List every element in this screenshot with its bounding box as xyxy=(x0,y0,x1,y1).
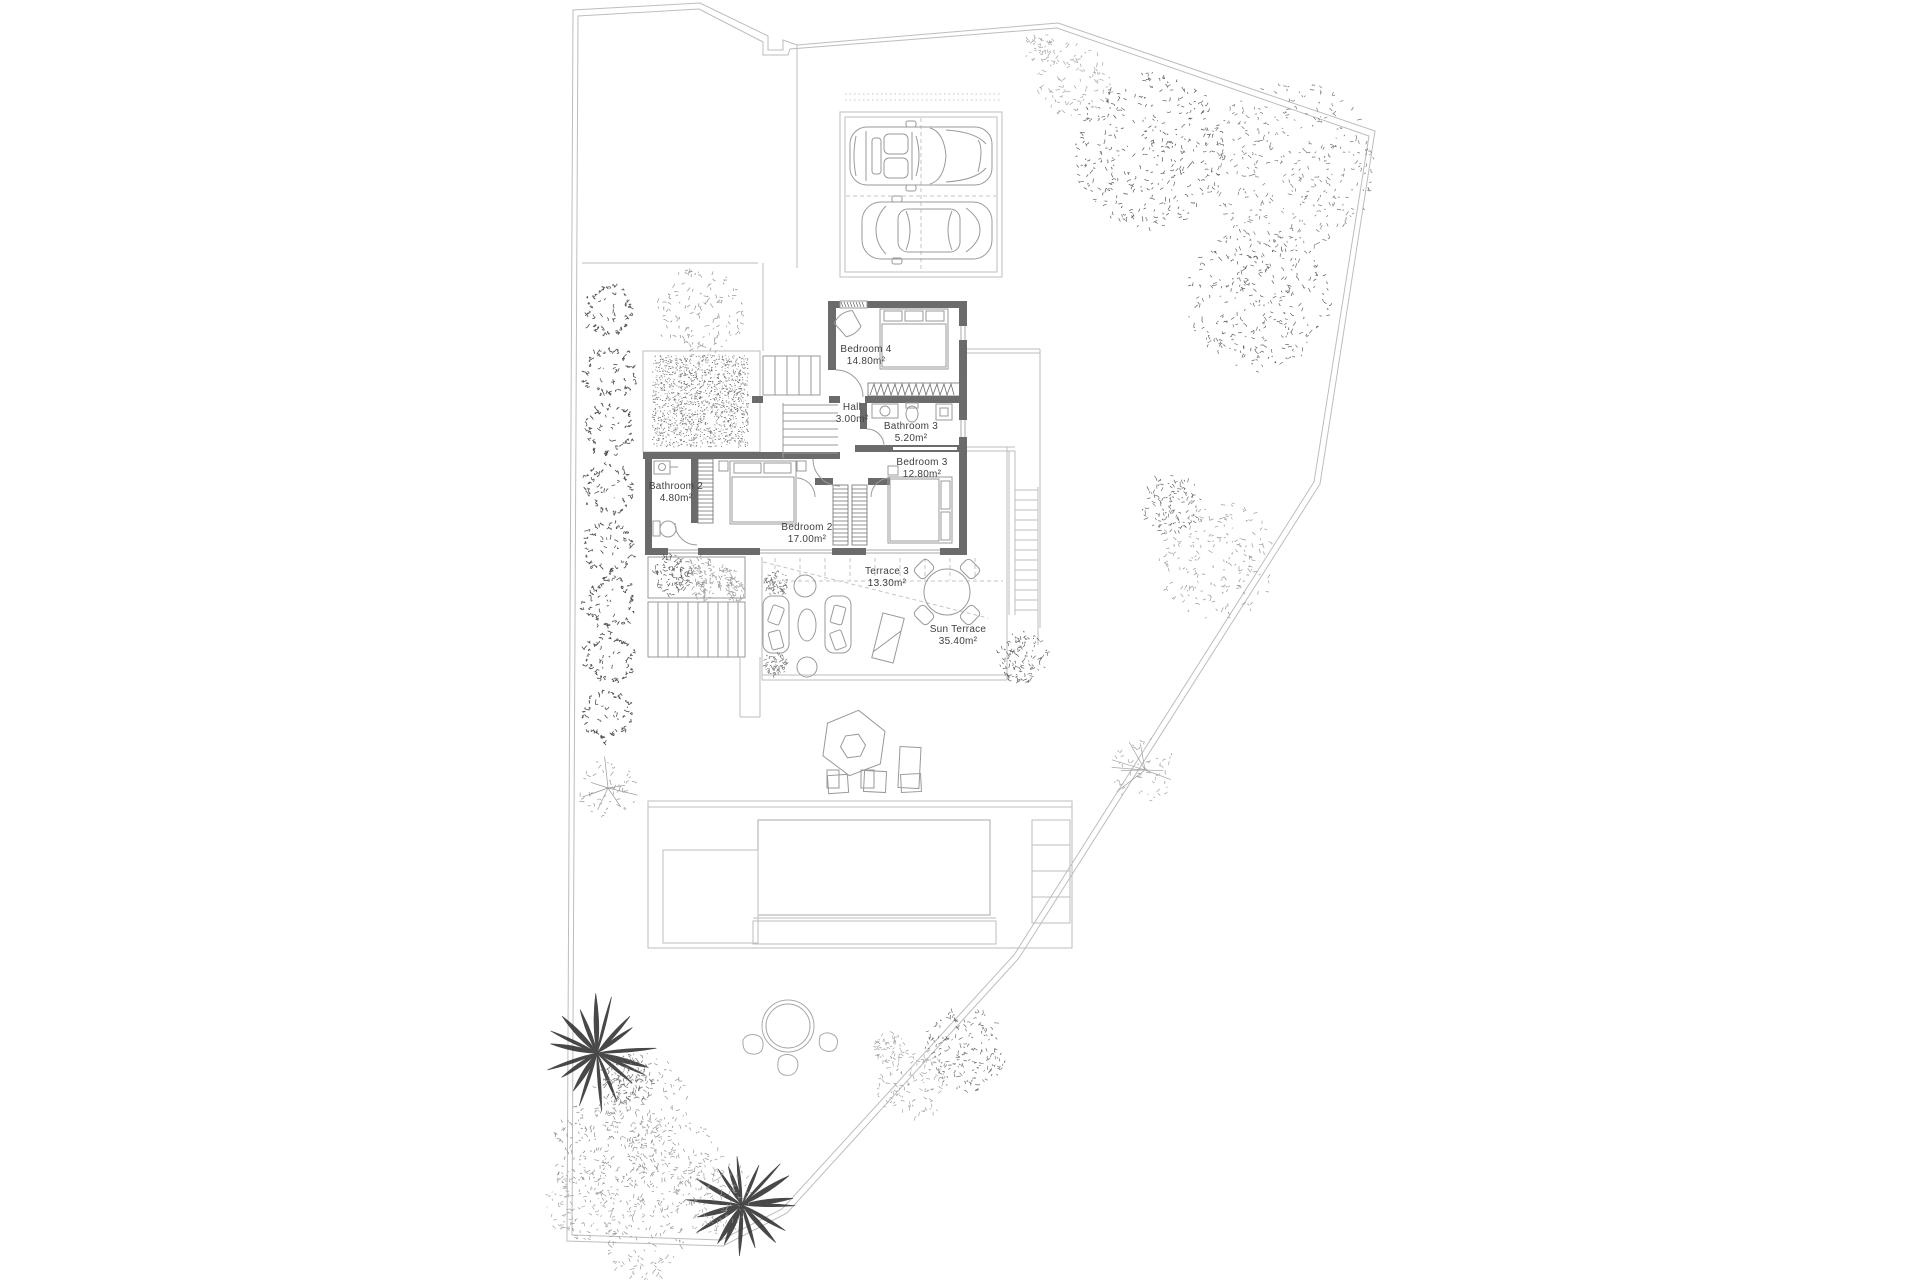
bush-icon xyxy=(584,520,635,574)
bush-icon xyxy=(582,631,635,682)
terrace-planters xyxy=(794,575,817,677)
tree-icon xyxy=(1159,503,1272,618)
swimming-pool xyxy=(758,820,990,915)
small-tree-icon xyxy=(579,756,637,817)
exterior-stair xyxy=(967,349,1040,645)
bush-icon xyxy=(585,403,634,455)
bush-icon xyxy=(580,576,634,628)
small-tree-icon xyxy=(1112,739,1172,801)
room-area-bathroom3: 5.20m² xyxy=(895,433,928,444)
tree-icon xyxy=(764,571,788,595)
window-bedroom4-top xyxy=(840,301,867,308)
wood-deck xyxy=(648,557,760,717)
tree-icon xyxy=(925,1009,1005,1093)
pool-lawn-patch xyxy=(663,850,758,943)
tree-icon xyxy=(657,269,743,356)
tree-icon xyxy=(593,1053,688,1148)
terrace-table-set xyxy=(913,558,982,627)
room-label-bathroom3: Bathroom 3 xyxy=(884,421,938,432)
room-label-bedroom4: Bedroom 4 xyxy=(840,344,891,355)
room-area-hall: 3.00m² xyxy=(836,414,869,425)
floor-plan-drawing: Bedroom 4 14.80m² Hall 3.00m² Bathroom 3… xyxy=(0,0,1920,1280)
parking-area xyxy=(840,94,1002,277)
car-sedan-icon xyxy=(862,196,992,264)
stepping-stones xyxy=(743,1000,838,1075)
room-area-bedroom3: 12.80m² xyxy=(903,469,942,480)
room-area-sun-terrace: 35.40m² xyxy=(939,636,978,647)
room-label-sun-terrace: Sun Terrace xyxy=(930,624,987,635)
tree-icon xyxy=(689,555,715,585)
palm-tree-icon xyxy=(548,993,657,1111)
window-bathroom3-right xyxy=(959,420,967,437)
tree-icon xyxy=(1037,43,1113,116)
tree-icon xyxy=(1026,35,1055,62)
room-area-bathroom2: 4.80m² xyxy=(660,493,693,504)
room-label-bedroom2: Bedroom 2 xyxy=(781,522,832,533)
room-area-bedroom4: 14.80m² xyxy=(847,356,886,367)
tree-icon xyxy=(877,1050,945,1121)
bush-icon xyxy=(585,284,633,336)
bush-icon xyxy=(582,690,632,745)
pool-area xyxy=(648,801,1072,948)
staircase xyxy=(763,356,838,458)
palm-tree-icon xyxy=(686,1156,796,1256)
tree-icon xyxy=(1075,72,1225,231)
sun-loungers xyxy=(763,596,904,663)
room-label-hall: Hall xyxy=(843,402,861,413)
slider-bedroom2 xyxy=(760,550,832,553)
tree-icon xyxy=(652,553,693,597)
window-bedroom4-right xyxy=(959,326,967,340)
tree-icon xyxy=(554,1095,659,1206)
window-bathroom2-low xyxy=(668,550,698,553)
gravel-patch xyxy=(643,351,760,452)
bush-icon xyxy=(582,348,637,396)
bush-icon xyxy=(583,463,634,515)
room-area-bedroom2: 17.00m² xyxy=(788,534,827,545)
slider-bedroom3 xyxy=(866,550,940,553)
tree-icon xyxy=(1142,475,1201,534)
room-label-terrace3: Terrace 3 xyxy=(865,566,909,577)
room-label-bedroom3: Bedroom 3 xyxy=(896,457,947,468)
tree-icon xyxy=(763,652,788,677)
room-area-terrace3: 13.30m² xyxy=(868,578,907,589)
tree-icon xyxy=(711,564,739,590)
room-label-bathroom2: Bathroom 2 xyxy=(649,481,703,492)
garden-middle xyxy=(821,706,922,793)
floor-plan-page: Bedroom 4 14.80m² Hall 3.00m² Bathroom 3… xyxy=(0,0,1920,1280)
tree-icon xyxy=(628,1115,718,1212)
tree-icon xyxy=(1188,229,1332,373)
tree-icon xyxy=(873,1031,905,1064)
